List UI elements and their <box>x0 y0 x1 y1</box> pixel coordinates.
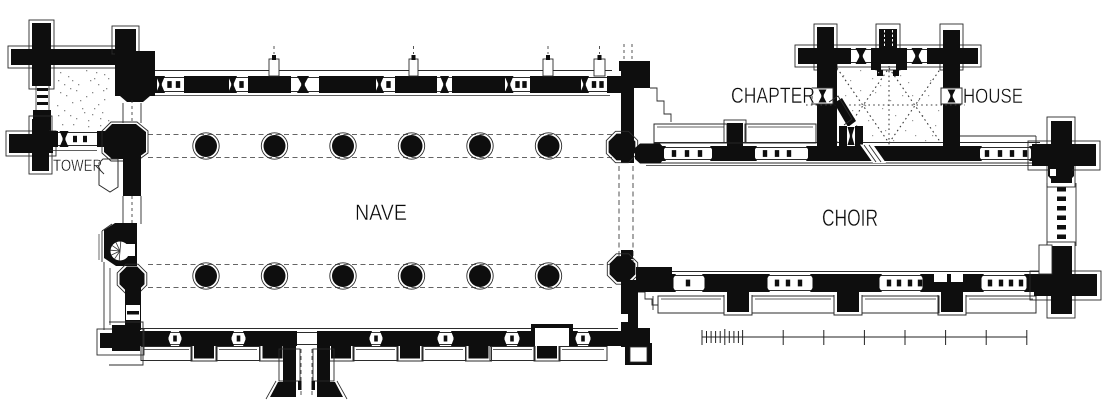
svg-text:CHOIR: CHOIR <box>822 205 878 232</box>
svg-text:TOWER: TOWER <box>53 156 102 175</box>
svg-text:NAVE: NAVE <box>355 200 407 225</box>
svg-text:HOUSE: HOUSE <box>963 85 1023 108</box>
svg-text:CHAPTER: CHAPTER <box>731 83 815 108</box>
